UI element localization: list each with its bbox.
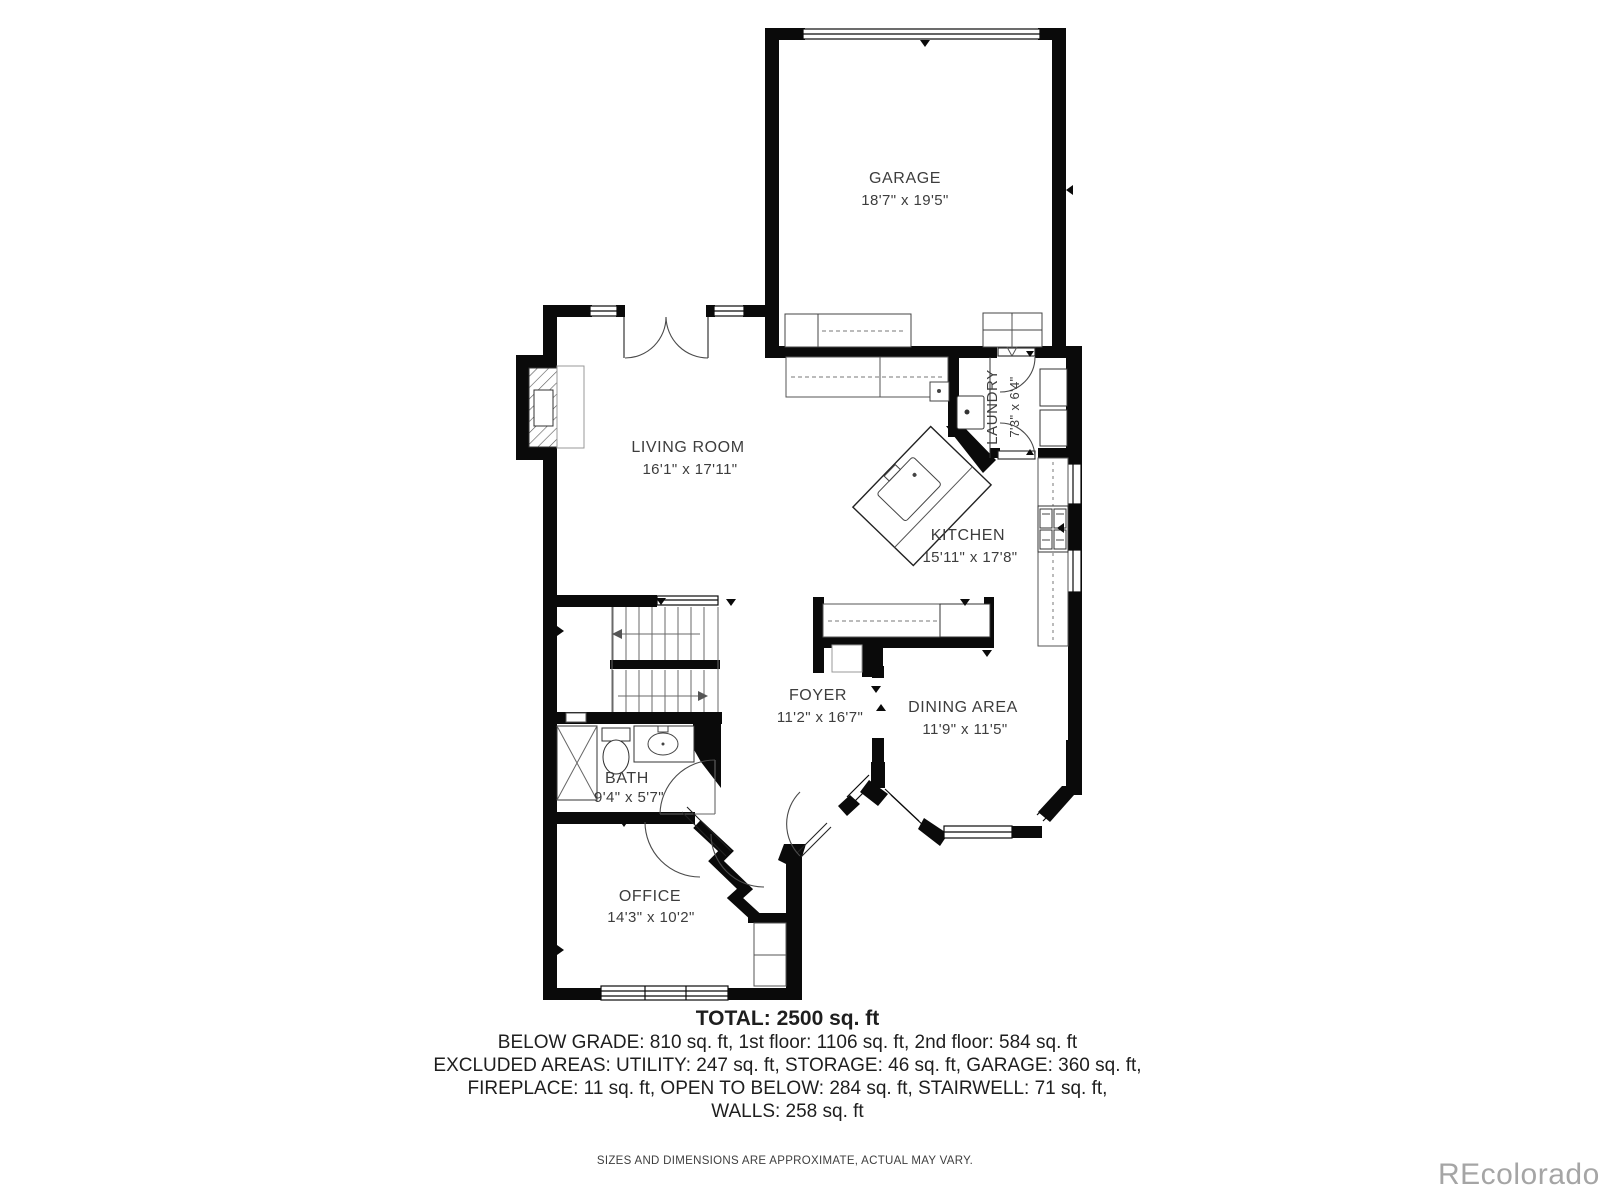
french-doors — [624, 317, 708, 358]
kitchen-name: KITCHEN — [931, 527, 1005, 544]
bath-name: BATH — [605, 770, 649, 787]
dining-area-label: DINING AREA 11'9" x 11'5" — [908, 699, 1018, 738]
garage-label: GARAGE 18'7" x 19'5" — [861, 170, 948, 209]
office-label: OFFICE 14'3" x 10'2" — [607, 888, 694, 926]
summary-line-excluded: EXCLUDED AREAS: UTILITY: 247 sq. ft, STO… — [0, 1054, 1575, 1077]
floor-plan-page: GARAGE 18'7" x 19'5" LIVING ROOM 16'1" x… — [0, 0, 1600, 1199]
living-room-label: LIVING ROOM 16'1" x 17'11" — [631, 439, 744, 478]
office-closet — [754, 923, 786, 986]
windows — [590, 29, 1081, 1000]
summary-line-floors: BELOW GRADE: 810 sq. ft, 1st floor: 1106… — [0, 1031, 1575, 1054]
recolorado-watermark: REcolorado — [1438, 1158, 1600, 1192]
niche — [832, 645, 862, 672]
summary-line-fireplace: FIREPLACE: 11 sq. ft, OPEN TO BELOW: 284… — [0, 1077, 1575, 1100]
kitchen-dims: 15'11" x 17'8" — [922, 549, 1017, 566]
toilet — [602, 728, 630, 774]
garage-storage — [785, 314, 911, 347]
fireplace — [529, 366, 584, 448]
stairs-up-arrow — [612, 629, 700, 639]
living-room-dims: 16'1" x 17'11" — [642, 461, 737, 478]
laundry-dims: 7'3" x 6'4" — [1007, 376, 1022, 437]
total-area: TOTAL: 2500 sq. ft — [0, 1007, 1575, 1031]
stairs-down-arrow — [618, 691, 708, 701]
bath-dims: 9'4" x 5'7" — [594, 789, 664, 806]
washer — [1040, 369, 1067, 406]
vanity-sink — [634, 726, 694, 762]
stair-railing — [657, 596, 718, 605]
area-summary: TOTAL: 2500 sq. ft BELOW GRADE: 810 sq. … — [0, 1007, 1575, 1123]
garage-dims: 18'7" x 19'5" — [861, 192, 948, 209]
garage-door — [803, 29, 1040, 39]
summary-line-walls: WALLS: 258 sq. ft — [0, 1100, 1575, 1123]
staircase — [612, 607, 718, 712]
foyer-label: FOYER 11'2" x 16'7" — [777, 687, 863, 726]
laundry-label: LAUNDRY 7'3" x 6'4" — [984, 369, 1022, 445]
disclaimer: SIZES AND DIMENSIONS ARE APPROXIMATE, AC… — [0, 1155, 1570, 1167]
foyer-name: FOYER — [789, 687, 847, 704]
kitchen-counter-top — [786, 357, 949, 401]
living-room-name: LIVING ROOM — [631, 439, 744, 456]
office-window — [601, 986, 728, 1000]
bath-label: BATH 9'4" x 5'7" — [594, 770, 664, 806]
laundry-name: LAUNDRY — [984, 369, 1001, 445]
office-dims: 14'3" x 10'2" — [607, 909, 694, 926]
dishwasher — [940, 604, 990, 637]
dryer — [1040, 410, 1067, 446]
utility-sink — [957, 396, 984, 429]
office-name: OFFICE — [619, 888, 681, 905]
kitchen-counter-right — [1038, 458, 1068, 646]
bay-walls — [778, 740, 1082, 870]
dining-area-name: DINING AREA — [908, 699, 1018, 716]
garage-name: GARAGE — [869, 170, 941, 187]
front-door — [787, 792, 831, 857]
living-room-windows — [590, 306, 744, 316]
foyer-dims: 11'2" x 16'7" — [777, 709, 863, 726]
kitchen-label: KITCHEN 15'11" x 17'8" — [922, 527, 1017, 566]
dining-area-dims: 11'9" x 11'5" — [922, 721, 1007, 738]
